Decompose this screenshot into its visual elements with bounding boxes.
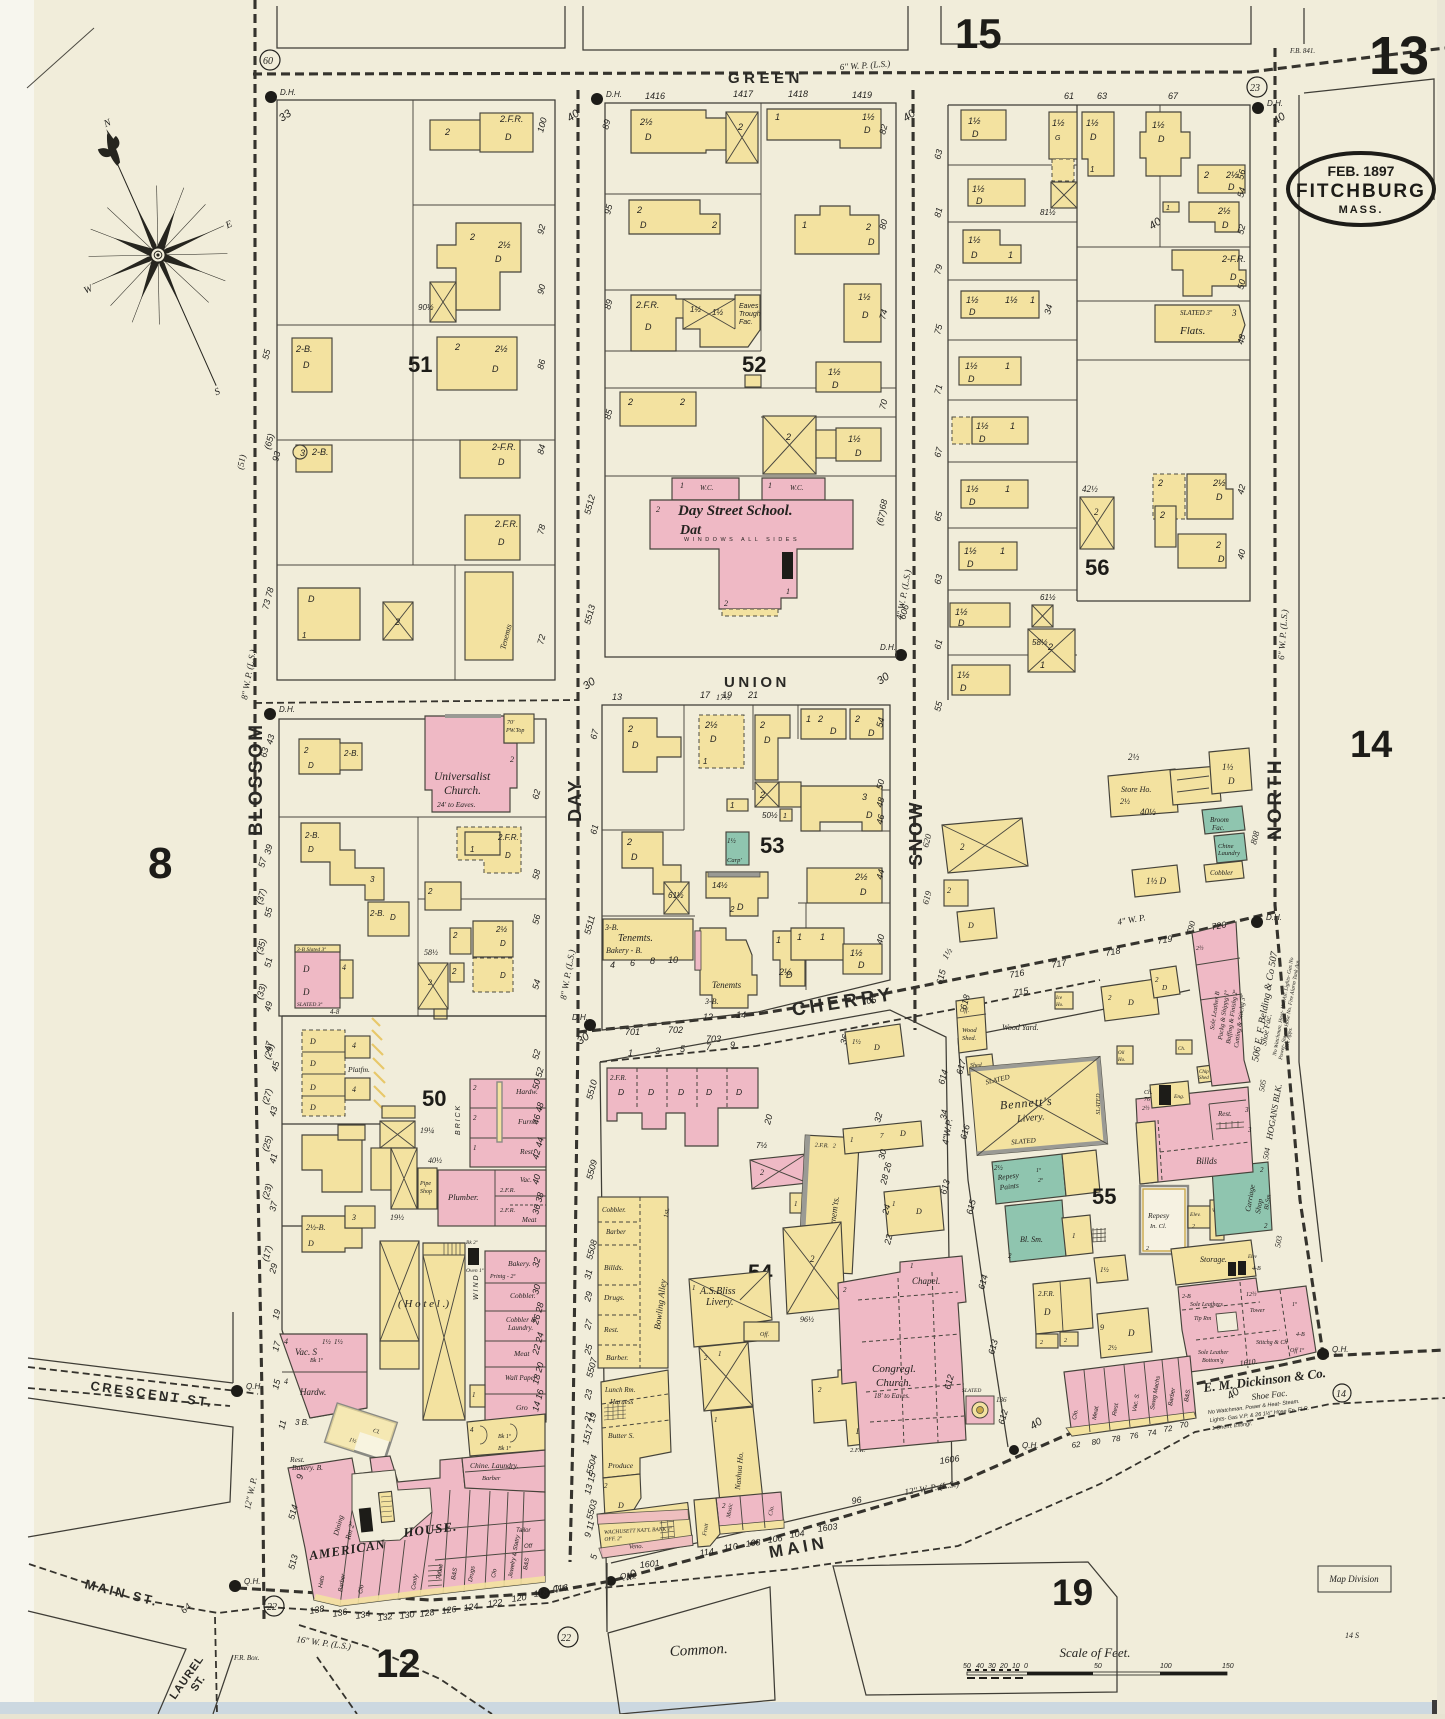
svg-text:53: 53 [760,833,784,858]
svg-text:1½: 1½ [1100,1266,1110,1274]
svg-text:Ch.: Ch. [1178,1047,1185,1052]
svg-text:63: 63 [1097,91,1107,101]
svg-text:D: D [967,559,974,569]
svg-text:D.H.: D.H. [880,643,896,652]
svg-text:2-B.: 2-B. [304,831,320,840]
svg-text:D: D [969,307,976,317]
svg-text:3: 3 [1231,308,1237,318]
svg-text:Q.H.: Q.H. [244,1577,260,1586]
svg-text:3-B.: 3-B. [604,923,619,932]
svg-text:D: D [1218,554,1225,564]
svg-text:2: 2 [627,397,633,407]
svg-text:3 B.: 3 B. [295,1418,309,1427]
svg-text:Chapel.: Chapel. [912,1276,940,1286]
svg-text:2.F.R.: 2.F.R. [494,519,518,529]
svg-text:In. Cl.: In. Cl. [1149,1223,1167,1230]
svg-text:D: D [855,448,862,458]
svg-text:D: D [1230,272,1237,282]
svg-text:1½: 1½ [955,607,968,617]
svg-text:1: 1 [1090,165,1094,174]
svg-text:2.F.R.: 2.F.R. [815,1143,829,1150]
svg-text:D: D [302,987,310,997]
svg-text:D: D [862,310,869,320]
svg-text:1½: 1½ [712,308,723,317]
svg-text:A.S.Bliss: A.S.Bliss [699,1286,736,1297]
svg-text:128: 128 [419,1607,435,1619]
svg-text:D: D [710,734,717,744]
svg-text:8: 8 [148,839,172,888]
svg-text:702: 702 [668,1025,683,1035]
svg-text:Chine. Laundry.: Chine. Laundry. [470,1461,519,1470]
svg-text:D: D [958,618,965,628]
svg-text:1: 1 [1040,660,1045,670]
svg-text:1: 1 [470,845,474,854]
svg-text:SLATED 3º: SLATED 3º [1180,309,1213,317]
svg-text:1: 1 [1010,421,1015,431]
svg-text:D: D [915,1207,922,1216]
svg-text:Carp': Carp' [727,857,742,864]
svg-text:D: D [618,1087,624,1097]
svg-text:1: 1 [714,1416,718,1424]
svg-text:1½: 1½ [1152,120,1165,130]
svg-text:24' to Eaves.: 24' to Eaves. [437,800,476,809]
svg-text:60: 60 [263,56,273,67]
svg-text:56: 56 [1085,555,1109,580]
svg-text:D: D [505,132,512,142]
svg-text:2: 2 [817,714,823,724]
svg-text:67: 67 [1168,91,1179,101]
svg-text:Wood Yard.: Wood Yard. [1002,1023,1038,1032]
svg-text:Harness: Harness [609,1398,634,1406]
svg-text:Stitchg & Ch: Stitchg & Ch [1256,1340,1287,1346]
svg-text:Platfm.: Platfm. [347,1065,370,1074]
svg-text:1: 1 [797,932,802,942]
svg-text:116: 116 [553,1582,569,1594]
svg-text:Barber: Barber [482,1475,501,1482]
svg-text:2½: 2½ [1142,1105,1150,1112]
svg-text:2: 2 [865,222,871,232]
svg-text:14: 14 [1336,1389,1346,1400]
svg-text:D: D [308,761,314,770]
svg-text:14 S: 14 S [1345,1631,1359,1640]
svg-text:W I N D: W I N D [473,1276,480,1301]
svg-text:4: 4 [610,960,615,970]
svg-text:G: G [1055,135,1061,142]
svg-text:124: 124 [463,1601,479,1613]
svg-text:1½: 1½ [1222,762,1234,772]
svg-text:D: D [737,902,744,912]
svg-text:D: D [309,1083,316,1092]
svg-text:2½: 2½ [1128,752,1140,762]
svg-text:D: D [866,810,873,820]
svg-text:2: 2 [473,1084,477,1092]
svg-text:WINDOWS ALL SIDES: WINDOWS ALL SIDES [684,537,800,543]
svg-text:D: D [736,1087,742,1097]
svg-text:PW.Top: PW.Top [505,728,524,734]
svg-text:58½: 58½ [1032,638,1048,647]
svg-text:1: 1 [794,1200,798,1208]
svg-text:Scale of Feet.: Scale of Feet. [1059,1645,1130,1660]
svg-text:2: 2 [759,720,765,730]
svg-text:D: D [979,434,986,444]
svg-text:Ho.: Ho. [1117,1058,1125,1063]
svg-text:70: 70 [1179,1420,1190,1430]
svg-text:D: D [1222,220,1229,230]
svg-text:1st.: 1st. [662,1207,671,1218]
svg-text:1½: 1½ [334,1338,344,1346]
svg-text:2: 2 [1108,994,1112,1002]
svg-text:120: 120 [511,1592,527,1604]
svg-text:58½: 58½ [424,948,438,957]
svg-text:2½: 2½ [1120,797,1130,806]
svg-text:DAY: DAY [565,778,585,822]
svg-text:150: 150 [1222,1663,1234,1670]
svg-text:1: 1 [786,587,790,596]
svg-text:2.F.R.: 2.F.R. [610,1074,627,1082]
svg-text:126: 126 [441,1604,457,1616]
svg-text:19½: 19½ [390,1213,404,1222]
svg-text:2: 2 [1215,540,1221,550]
svg-text:4: 4 [352,1085,356,1094]
svg-text:2½-B.: 2½-B. [306,1223,326,1232]
svg-text:D: D [969,497,976,507]
svg-text:3: 3 [1244,1106,1249,1114]
svg-text:D: D [498,537,505,547]
svg-text:0: 0 [1024,1663,1028,1670]
svg-text:2: 2 [451,967,457,976]
svg-text:Bk 1º: Bk 1º [498,1434,511,1440]
svg-text:Oven 1º: Oven 1º [466,1268,484,1274]
svg-text:D: D [968,374,975,384]
svg-text:50: 50 [1094,1663,1102,1670]
svg-text:1½: 1½ [1086,118,1099,128]
svg-text:Dat: Dat [679,523,702,538]
svg-text:Eng.: Eng. [1173,1094,1184,1100]
svg-text:Ho.: Ho. [1055,1003,1063,1008]
svg-text:40½: 40½ [1140,807,1156,817]
svg-text:Map Division: Map Division [1328,1574,1379,1584]
svg-text:2: 2 [636,205,642,215]
svg-text:76: 76 [1129,1431,1140,1441]
svg-text:2: 2 [444,127,450,137]
svg-text:D: D [706,1087,712,1097]
svg-text:D: D [976,196,983,206]
svg-text:Chip: Chip [1199,1070,1209,1075]
svg-text:19: 19 [1052,1572,1093,1613]
svg-text:132: 132 [377,1611,393,1623]
svg-text:2: 2 [760,1168,764,1177]
svg-text:D: D [832,380,839,390]
svg-text:2: 2 [604,1482,608,1490]
svg-text:Bakery - B.: Bakery - B. [606,946,642,955]
svg-text:D: D [1228,182,1235,192]
svg-text:1: 1 [806,714,811,724]
svg-text:OFF. 2º: OFF. 2º [604,1536,622,1543]
svg-text:2: 2 [1146,1246,1149,1252]
svg-text:Sole Leather: Sole Leather [1198,1350,1229,1356]
svg-text:Drugs.: Drugs. [603,1293,625,1302]
svg-text:Sole Leathers: Sole Leathers [1190,1302,1223,1308]
svg-text:10: 10 [1012,1663,1020,1670]
svg-text:FITCHBURG: FITCHBURG [1296,181,1426,202]
svg-text:61½: 61½ [668,891,684,900]
svg-text:2½: 2½ [495,925,507,934]
svg-text:D: D [309,1103,316,1112]
svg-text:2: 2 [854,714,860,724]
svg-text:1½: 1½ [1005,295,1018,305]
svg-text:1º: 1º [1036,1168,1041,1174]
svg-text:3-B.: 3-B. [704,997,719,1006]
svg-text:2: 2 [1094,507,1099,517]
svg-text:D: D [1216,492,1223,502]
svg-text:22: 22 [267,1602,277,1613]
svg-text:2: 2 [759,790,765,800]
svg-text:1½: 1½ [828,367,841,377]
svg-text:Tip Rm: Tip Rm [1194,1316,1212,1322]
svg-text:50½: 50½ [762,811,778,820]
svg-text:D: D [1043,1307,1051,1317]
svg-text:Laundry: Laundry [1217,850,1240,857]
svg-text:D: D [971,250,978,260]
svg-text:Meat: Meat [521,1216,537,1224]
svg-text:3: 3 [1247,1126,1252,1134]
svg-text:701: 701 [625,1027,640,1037]
svg-text:D: D [308,594,315,604]
svg-text:D: D [1227,776,1235,786]
svg-text:114: 114 [699,1546,715,1558]
svg-text:20: 20 [999,1663,1008,1670]
svg-text:1: 1 [1000,546,1005,556]
svg-text:1½: 1½ [957,670,970,680]
svg-text:D: D [868,728,875,738]
svg-text:1: 1 [1008,250,1013,260]
svg-text:D.H.: D.H. [279,705,295,714]
svg-text:1½ D: 1½ D [1146,876,1167,886]
svg-text:Cobbler.: Cobbler. [602,1206,626,1214]
svg-text:D: D [830,726,837,736]
svg-text:D: D [972,129,979,139]
svg-text:1½: 1½ [976,421,989,431]
svg-text:2: 2 [737,122,743,132]
svg-text:Bk 1º: Bk 1º [310,1358,323,1364]
svg-text:Vac. S: Vac. S [295,1347,317,1357]
svg-text:NORTH: NORTH [1265,757,1286,840]
svg-text:Tenemts: Tenemts [712,980,742,990]
svg-text:1: 1 [776,935,781,945]
svg-text:SLATED: SLATED [962,1388,981,1394]
svg-text:40: 40 [976,1663,984,1670]
svg-text:D: D [500,939,506,948]
svg-text:2: 2 [427,887,433,896]
svg-text:72: 72 [1163,1424,1174,1434]
svg-text:14: 14 [1350,724,1392,766]
svg-text:2-B.: 2-B. [343,749,359,758]
svg-text:96½: 96½ [800,1315,814,1324]
svg-text:Tailor: Tailor [516,1528,531,1534]
svg-text:8: 8 [650,956,655,966]
svg-text:D: D [1161,984,1167,992]
svg-text:Common.: Common. [669,1641,728,1660]
svg-text:2½: 2½ [1108,1344,1118,1352]
svg-text:4: 4 [352,1041,356,1050]
svg-text:Eaves: Eaves [739,303,759,310]
svg-text:4: 4 [284,1337,288,1346]
svg-text:D.H.: D.H. [1267,99,1283,108]
svg-text:118: 118 [533,1587,549,1599]
svg-text:Trough: Trough [739,311,761,318]
svg-text:50: 50 [963,1663,971,1670]
svg-text:1: 1 [718,1350,722,1358]
svg-text:2-F.R.: 2-F.R. [491,442,516,452]
svg-text:51: 51 [408,352,432,377]
svg-text:D: D [498,457,505,467]
svg-text:14: 14 [736,1010,746,1020]
svg-text:D: D [864,125,871,135]
svg-text:1: 1 [1005,361,1010,371]
svg-text:Q.H.: Q.H. [1332,1345,1348,1354]
svg-text:1: 1 [1005,484,1010,494]
svg-text:2: 2 [711,220,717,230]
svg-text:Shop: Shop [420,1189,432,1195]
svg-text:23: 23 [1250,83,1260,94]
svg-text:2½: 2½ [994,1164,1004,1172]
svg-text:2: 2 [810,1254,815,1264]
svg-text:2: 2 [947,886,951,895]
svg-text:1½: 1½ [858,292,871,302]
svg-text:Fac.: Fac. [1211,824,1225,832]
svg-text:D: D [617,1501,624,1510]
svg-text:W.C.: W.C. [790,484,804,492]
svg-text:2: 2 [1040,1340,1043,1346]
svg-text:D: D [858,960,865,970]
svg-text:9: 9 [730,1040,735,1050]
svg-text:1: 1 [802,220,807,230]
svg-text:2: 2 [1047,642,1053,652]
svg-text:2: 2 [729,905,735,914]
svg-text:SLATED: SLATED [1096,1093,1102,1115]
svg-text:15: 15 [955,10,1002,57]
svg-text:D: D [390,913,396,922]
svg-text:Shed: Shed [1199,1076,1209,1081]
svg-text:1½: 1½ [966,484,979,494]
svg-text:Ice: Ice [1055,996,1063,1001]
svg-text:Chine: Chine [1218,843,1234,850]
svg-text:Meat: Meat [513,1349,530,1358]
svg-text:55: 55 [1092,1184,1116,1209]
svg-text:130: 130 [399,1609,415,1621]
svg-text:2-B.: 2-B. [311,447,329,457]
svg-text:19¼: 19¼ [420,1126,434,1135]
svg-text:D: D [309,1037,316,1046]
svg-text:1½: 1½ [862,112,875,122]
svg-text:2.F.R.: 2.F.R. [500,1207,516,1214]
svg-text:2-F.R.: 2-F.R. [1221,254,1246,264]
svg-text:D.H.: D.H. [280,88,296,97]
svg-text:Q.H.: Q.H. [1022,1441,1038,1450]
svg-text:1½: 1½ [965,361,978,371]
svg-text:2: 2 [469,232,475,242]
svg-text:Livery.: Livery. [705,1297,734,1308]
svg-text:D: D [1127,998,1134,1007]
svg-text:D: D [1158,134,1165,144]
svg-text:2: 2 [722,1502,726,1510]
svg-text:GREEN: GREEN [728,70,804,87]
svg-text:B R I C K: B R I C K [455,1105,462,1135]
svg-text:Laundry.: Laundry. [507,1324,533,1332]
svg-text:22: 22 [561,1633,571,1644]
svg-text:Elev.: Elev. [1189,1212,1201,1218]
svg-text:2: 2 [1192,1224,1195,1230]
svg-text:90½: 90½ [418,303,434,312]
svg-text:Rest.: Rest. [1217,1110,1232,1118]
svg-text:2.F.R.: 2.F.R. [1038,1290,1055,1298]
svg-text:3: 3 [300,448,305,458]
svg-text:Barber: Barber [606,1228,626,1236]
svg-text:Store Ho.: Store Ho. [1121,785,1151,794]
svg-text:2: 2 [452,931,458,940]
svg-text:Hardw.: Hardw. [299,1387,326,1397]
svg-text:Bk 2º: Bk 2º [466,1240,478,1246]
svg-text:2½: 2½ [1212,478,1226,488]
svg-text:Elev: Elev [1247,1255,1258,1260]
svg-text:9: 9 [1100,1323,1104,1332]
svg-text:F.B. 841.: F.B. 841. [1289,47,1315,55]
svg-text:1½: 1½ [972,184,985,194]
svg-text:2½: 2½ [497,240,511,250]
svg-text:2.F.R.: 2.F.R. [497,833,519,842]
svg-text:74: 74 [1147,1428,1158,1438]
svg-text:D: D [307,1239,314,1248]
svg-text:42½: 42½ [1082,484,1098,494]
svg-text:18' to Eaves.: 18' to Eaves. [874,1392,910,1400]
svg-text:4-B: 4-B [1252,1265,1261,1272]
svg-text:2: 2 [833,1144,836,1150]
svg-text:W.C.: W.C. [700,484,714,492]
svg-text:Gro: Gro [516,1403,528,1412]
svg-text:1417: 1417 [733,89,754,99]
svg-text:2: 2 [843,1286,847,1294]
svg-text:80: 80 [1091,1437,1102,1447]
svg-text:Barber.: Barber. [606,1353,628,1362]
svg-text:Plumber.: Plumber. [447,1192,478,1202]
svg-text:1½: 1½ [968,116,981,126]
svg-text:D.H.: D.H. [1266,913,1282,922]
svg-text:3: 3 [351,1213,356,1222]
svg-text:1: 1 [775,112,780,122]
svg-text:Off: Off [524,1544,533,1550]
svg-text:Rest.: Rest. [603,1325,619,1334]
svg-text:62: 62 [1071,1440,1082,1450]
svg-text:2-B.: 2-B. [369,909,385,918]
svg-text:D: D [786,970,793,980]
svg-text:Produce: Produce [607,1461,634,1470]
svg-text:D.H.: D.H. [606,90,622,99]
svg-text:D: D [303,360,310,370]
svg-text:12: 12 [703,1012,713,1022]
svg-text:61½: 61½ [1040,593,1056,602]
svg-text:10: 10 [668,955,678,965]
svg-text:Fac.: Fac. [739,319,753,326]
svg-text:4-B: 4-B [1296,1331,1305,1338]
svg-text:2½: 2½ [494,344,508,354]
svg-text:3: 3 [370,875,375,884]
svg-text:21: 21 [747,690,758,700]
svg-text:Storage.: Storage. [1200,1255,1227,1264]
svg-text:4: 4 [342,963,346,972]
svg-text:1418: 1418 [788,89,808,99]
svg-text:Church.: Church. [444,785,481,797]
svg-text:2: 2 [510,755,514,764]
